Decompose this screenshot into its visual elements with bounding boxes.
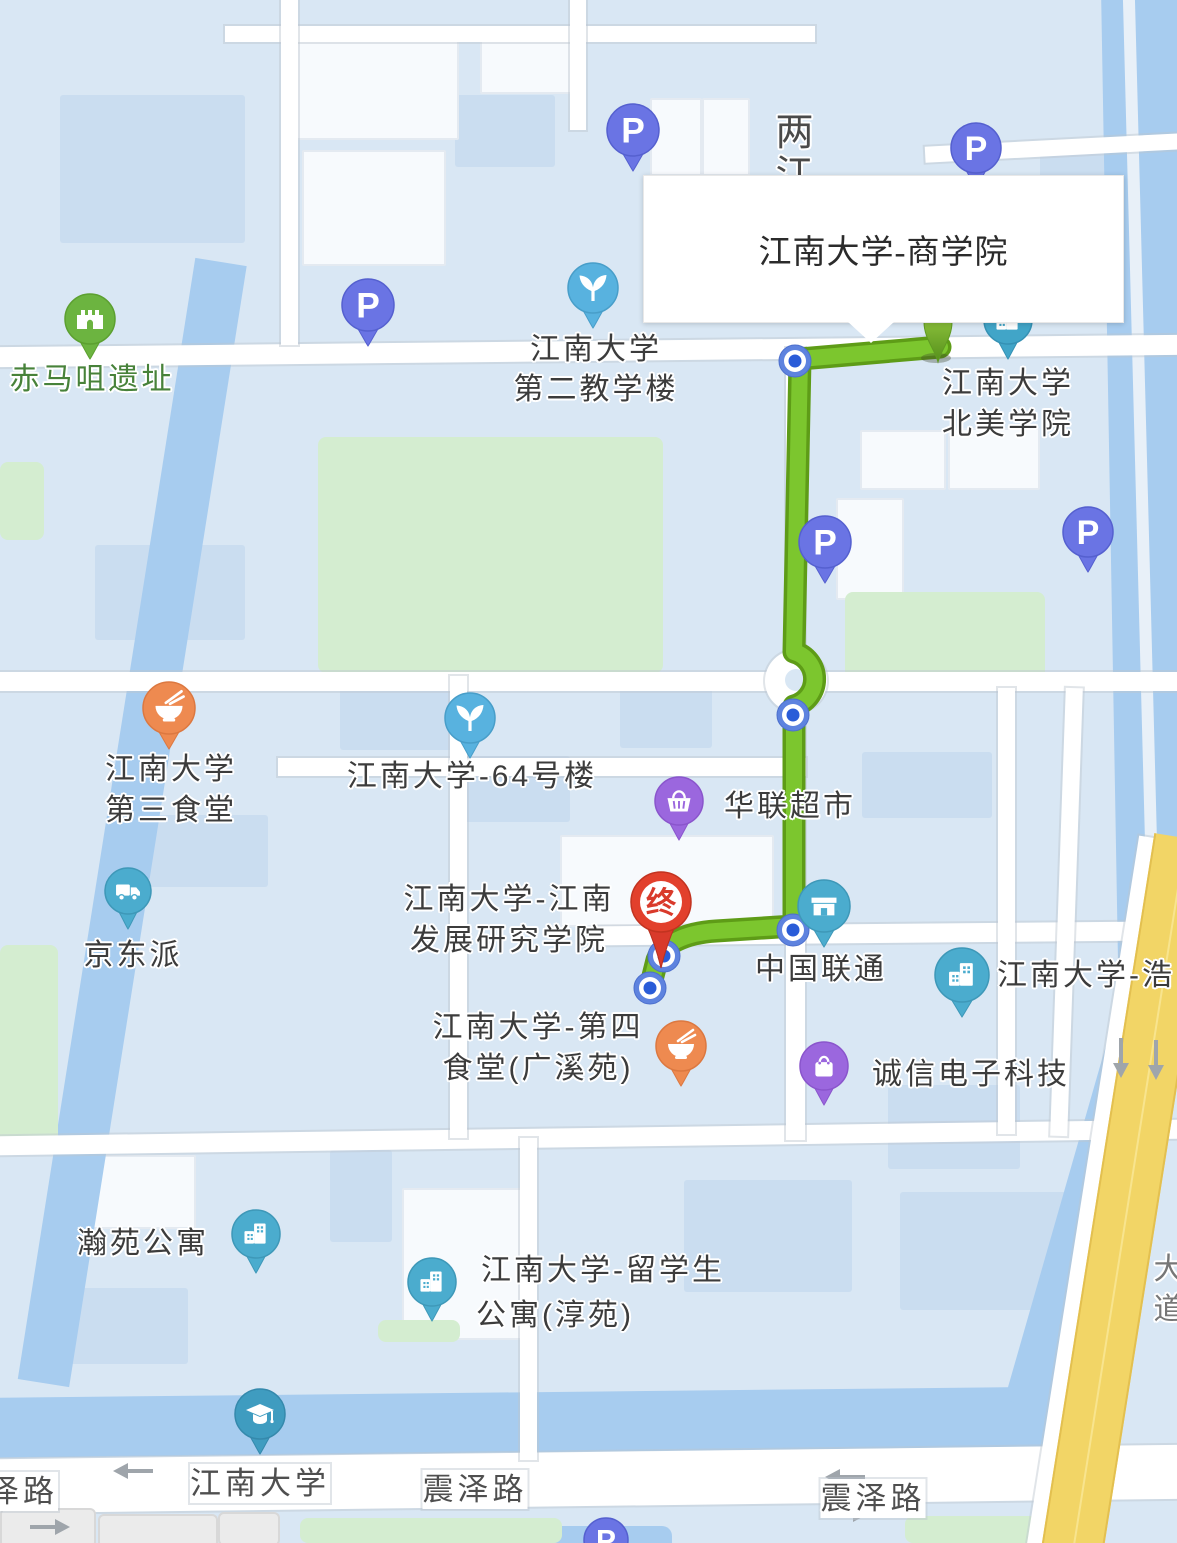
svg-text:P: P [596,1525,616,1543]
svg-text:终: 终 [646,887,677,920]
label-no2-teaching-building-line: 第二教学楼 [514,370,679,410]
p-icon: P [336,273,400,353]
map-block [330,1150,392,1242]
sprout-icon [562,257,624,335]
label-development-institute: 江南大学-江南发展研究学院 [404,879,615,961]
road-vertical [281,0,298,345]
p-icon: P [1057,501,1119,579]
p-icon: P [793,510,857,590]
label-china-unicom: 中国联通 [755,951,887,989]
label-highway-partial-line: 大 [1154,1250,1177,1290]
label-hanyuan-apartment: 瀚苑公寓 [77,1225,209,1263]
building-block [302,150,446,266]
label-highway-partial-line: 道 [1154,1290,1177,1330]
svg-text:P: P [621,111,645,150]
park-area [318,437,663,673]
roundabout-center [785,669,807,691]
building-icon [929,942,995,1024]
label-chimaju-ruins-line: 赤马咀遗址 [10,361,175,399]
label-canteen3-line: 第三食堂 [105,790,237,831]
label-jiangnan-university-road-line: 江南大学 [190,1464,330,1503]
p-icon: P [578,1512,634,1543]
building-icon [402,1252,462,1328]
label-canteen4-line: 江南大学-第四 [433,1007,644,1048]
road-horizontal [225,26,815,42]
label-north-america-college-line: 北美学院 [942,404,1074,445]
label-highway-partial: 大道 [1154,1250,1177,1330]
label-hualian-supermarket: 华联超市 [724,788,856,826]
label-canteen4-line: 食堂(广溪苑) [433,1048,644,1089]
gradcap-icon [229,1383,291,1461]
label-canteen3: 江南大学第三食堂 [105,749,237,831]
label-development-institute-line: 发展研究学院 [404,920,615,961]
map-block [455,95,555,167]
label-zhenzelu-right-line: 震泽路 [821,1479,926,1518]
building-block [295,28,459,140]
roadside-block [98,1514,218,1543]
sprout-icon [439,687,501,765]
p-icon: P [601,98,665,178]
label-chengxin-electronics: 诚信电子科技 [872,1056,1070,1094]
road-vertical [786,348,805,1140]
label-hao-building-line: 江南大学-浩 [997,957,1175,995]
label-chimaju-ruins: 赤马咀遗址 [10,361,175,399]
bowl-icon [137,676,201,756]
label-canteen4: 江南大学-第四食堂(广溪苑) [433,1007,644,1089]
svg-text:P: P [1077,514,1100,552]
bowl-icon [650,1015,712,1093]
road-vertical [570,0,586,130]
svg-text:P: P [356,286,380,325]
label-chengxin-electronics-line: 诚信电子科技 [872,1056,1070,1094]
label-intl-student-apartment-1: 江南大学-留学生 [481,1252,725,1290]
store-icon [792,874,856,954]
park-area [0,462,44,540]
svg-text:P: P [965,130,988,168]
label-no2-teaching-building: 江南大学第二教学楼 [514,330,679,410]
label-china-unicom-line: 中国联通 [755,951,887,989]
map-block [862,752,992,818]
roadside-block [218,1512,280,1543]
popup-title: 江南大学-商学院 [759,225,1009,273]
svg-text:P: P [813,523,837,562]
label-zhenzelu-center-line: 震泽路 [423,1470,528,1509]
poi-popup[interactable]: 江南大学-商学院 [643,175,1124,323]
map-block [60,95,245,243]
label-jingdongpai: 京东派 [84,937,183,975]
basket-icon [649,771,709,847]
ruins-icon [59,288,121,366]
label-hualian-supermarket-line: 华联超市 [724,788,856,826]
building-block [860,430,946,490]
label-jingdongpai-line: 京东派 [84,937,183,975]
label-jiangnan-university-road: 江南大学 [190,1464,330,1503]
end-icon: 终 [627,868,695,980]
building-icon [226,1204,286,1280]
label-zelu-line: 泽路 [0,1472,58,1511]
map-canvas[interactable]: 两江赤马咀遗址江南大学第二教学楼江南大学北美学院江南大学第三食堂江南大学-64号… [0,0,1177,1543]
park-area [0,945,58,1153]
label-intl-student-apartment-2-line: 公寓(淳苑) [476,1297,634,1335]
label-zelu: 泽路 [0,1472,58,1511]
bag-icon [794,1036,854,1112]
label-zhenzelu-center: 震泽路 [423,1470,528,1509]
label-hanyuan-apartment-line: 瀚苑公寓 [77,1225,209,1263]
truck-icon [99,862,157,936]
popup-tail [847,321,895,343]
label-north-america-college-line: 江南大学 [942,363,1074,404]
label-development-institute-line: 江南大学-江南 [404,879,615,920]
building-block [702,98,750,176]
label-intl-student-apartment-2: 公寓(淳苑) [476,1297,634,1335]
label-intl-student-apartment-1-line: 江南大学-留学生 [481,1252,725,1290]
label-hao-building: 江南大学-浩 [997,957,1175,995]
park-area [300,1518,562,1543]
label-zhenzelu-right: 震泽路 [821,1479,926,1518]
label-liangjiang-line: 两 [775,112,816,154]
map-block [620,688,712,748]
label-no2-teaching-building-line: 江南大学 [514,330,679,370]
label-north-america-college: 江南大学北美学院 [942,363,1074,445]
